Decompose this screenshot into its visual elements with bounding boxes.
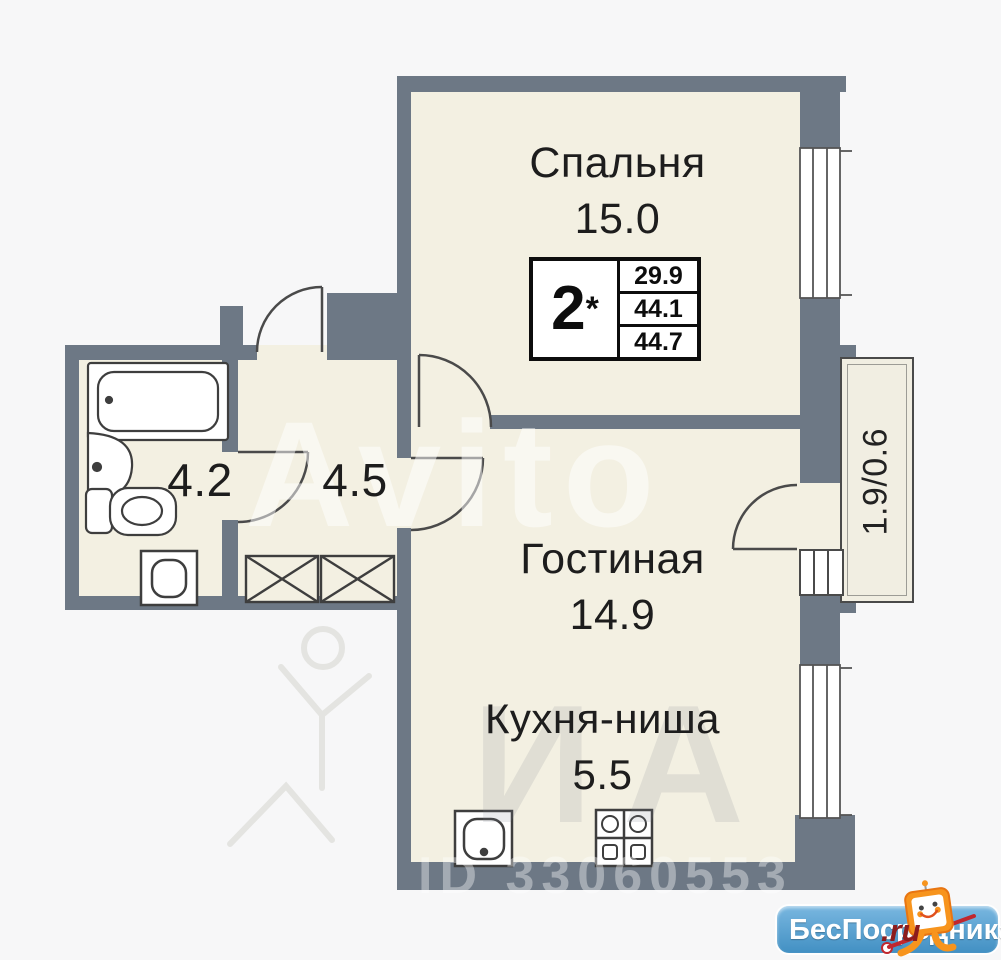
rooms-count-star: * [586,290,599,329]
doorway-entry [257,345,327,360]
living-label: Гостиная [425,536,800,583]
living-area: 14.9 [425,592,800,639]
bedroom-label: Спальня [430,140,805,187]
areas-column: 29.9 44.1 44.7 [620,261,697,357]
wall [327,293,411,360]
rooms-count: 2 [551,278,585,340]
window-icon [800,550,843,595]
wall [800,595,840,665]
wall [397,76,411,458]
floorplan-image: 1.9/0.6 [0,0,1001,960]
hallway-area: 4.5 [300,455,410,506]
wall [397,76,846,92]
wall [490,415,800,429]
wall [222,360,238,452]
total-area-value: 44.7 [620,327,697,357]
kitchen-label: Кухня-ниша [415,696,790,742]
doorway-balcony [800,483,840,552]
window-icon [800,148,852,298]
wall [222,520,238,596]
balcony-area-label: 1.9/0.6 [857,362,894,602]
besposrednika-logo-tld: .ru [881,913,921,949]
wall [220,306,243,360]
wall [65,596,411,610]
wall [800,92,840,148]
window-icon [800,665,852,818]
rooms-count-cell: 2* [533,261,620,357]
apartment-info-box: 2* 29.9 44.1 44.7 [529,257,701,361]
living-area-value: 29.9 [620,261,697,294]
wall [411,862,852,890]
wall [800,298,840,483]
wall [65,345,79,610]
bathroom-area: 4.2 [145,455,255,506]
door-icon [257,287,322,352]
apartment-area-value: 44.1 [620,294,697,327]
wall [397,528,411,890]
balcony-outline: 1.9/0.6 [840,357,914,603]
doorway-bedroom [411,415,490,429]
bedroom-area: 15.0 [430,196,805,243]
kitchen-area: 5.5 [415,752,790,798]
